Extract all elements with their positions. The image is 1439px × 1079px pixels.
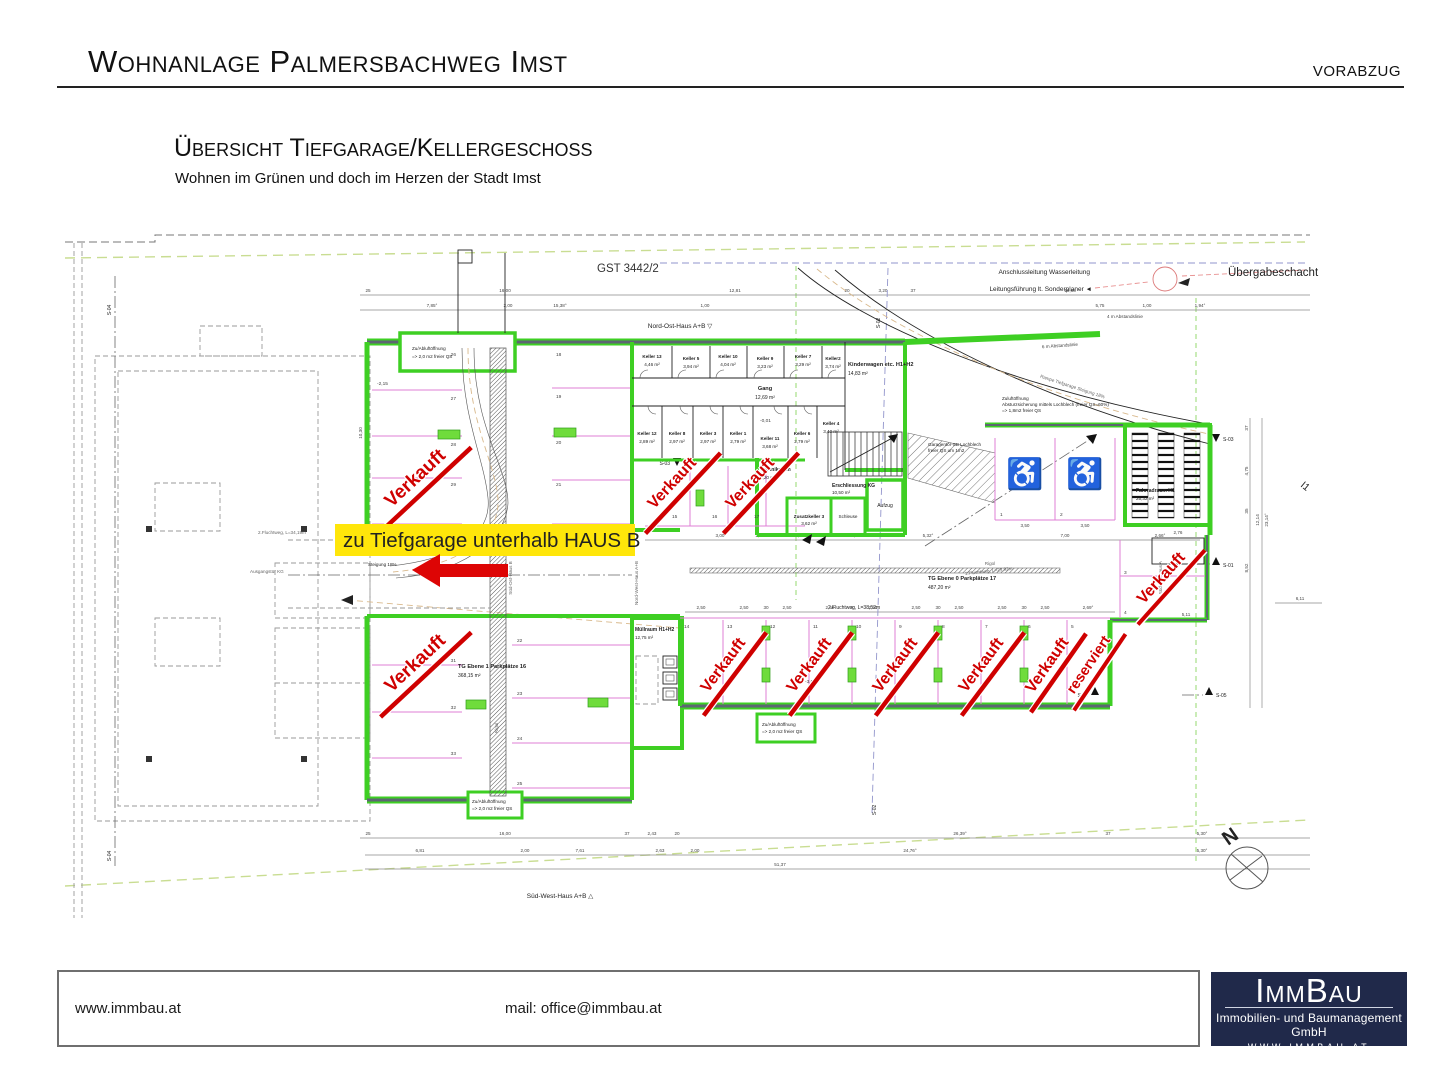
dim: 30 <box>1021 605 1027 610</box>
spot-number: 25 <box>517 781 523 787</box>
spot-number: 27 <box>451 396 457 402</box>
spot-number: 8 <box>942 624 945 630</box>
spot-number: 10 <box>856 624 862 630</box>
compass: N <box>1218 824 1268 889</box>
spot-number: 13 <box>727 624 733 630</box>
dim: 2,50 <box>912 605 921 610</box>
dim: 2,50 <box>955 605 964 610</box>
room-label: Keller 4 <box>823 421 840 426</box>
dim: 2,00 <box>521 848 530 853</box>
note-fluchtweg: 2.Fluchtweg, L=34,19m <box>258 530 306 535</box>
room-label: Keller 11 <box>761 436 780 441</box>
dim: 7,00 <box>1061 533 1070 538</box>
vent-label: => 2,0 m2 freier QS <box>472 806 512 811</box>
sold-marker: Verkauft <box>771 619 852 716</box>
dim: 2,50 <box>1041 605 1050 610</box>
dim: 37 <box>1244 425 1249 431</box>
highlight-text: zu Tiefgarage unterhalb HAUS B <box>343 529 640 552</box>
room-label: Keller 5 <box>683 356 700 361</box>
dim: 2,76 <box>1174 530 1183 535</box>
property-boundaries <box>65 235 1310 886</box>
room-area: 3,62 m² <box>801 521 817 526</box>
spot-number: 19 <box>556 394 562 400</box>
dim: 5,32° <box>923 533 934 538</box>
dim: 3,50 <box>1081 523 1090 528</box>
room-area: 487,20 m² <box>928 585 951 591</box>
floor-plan: 25 16,00 12,81 20 3,20 37 18,63 7,85° 2,… <box>60 228 1340 928</box>
room-label: Keller 9 <box>757 356 774 361</box>
vent-label: => 2,0 m2 freier QS <box>412 354 452 359</box>
room-area: 12,69 m² <box>755 395 775 401</box>
header-rule <box>57 86 1404 88</box>
note-garagentor: freier QS um 1m2 <box>928 448 965 453</box>
spot-number: 5 <box>1071 624 1074 630</box>
room-label: Keller 3 <box>700 431 717 436</box>
note-zuluft: Zuluftöffnung <box>1002 396 1029 401</box>
spot-number: 2 <box>1060 512 1063 518</box>
spot-number: 20 <box>556 440 562 446</box>
dim: 23,14° <box>1264 513 1269 526</box>
dim: 12,14 <box>1255 514 1260 526</box>
room-area: 368,15 m² <box>458 673 481 679</box>
sold-marker: Verkauft <box>857 619 938 716</box>
room-area: 2,79 m² <box>794 439 810 444</box>
room-label: Schleuse <box>839 514 858 519</box>
note-suedwest: Süd-West-Haus A+B △ <box>527 893 594 900</box>
dim: 2,43 <box>648 831 657 836</box>
spot-number: 14 <box>684 624 690 630</box>
spot-number: 6 <box>1028 624 1031 630</box>
draft-stamp: VORABZUG <box>1313 63 1401 80</box>
room-area: 3,94 m² <box>683 364 699 369</box>
spot-number: 18 <box>556 352 562 358</box>
dim: 1,00 <box>701 303 710 308</box>
spot-number: 11 <box>813 624 818 630</box>
section-s05: S-05 <box>1216 693 1227 699</box>
spot-number: 24 <box>517 736 523 742</box>
dim: 5,11 <box>1182 612 1191 617</box>
dim: 2,63 <box>656 848 665 853</box>
room-label: Keller 7 <box>795 354 812 359</box>
dim: 2,50 <box>869 605 878 610</box>
room-label: Aufzug <box>877 503 893 509</box>
dim: 3,00 <box>716 533 725 538</box>
room-area: 2,97 m² <box>669 439 685 444</box>
section-s03: S-03 <box>659 461 670 467</box>
note-zuluft: Absturzsicherung mittels Lochblech (frei… <box>1002 402 1109 407</box>
wheelchair-icon: ♿ <box>1006 456 1043 491</box>
spot-number: 12 <box>770 624 776 630</box>
spot-number: 9 <box>899 624 902 630</box>
dim: 2,50 <box>740 605 749 610</box>
dim: 30 <box>935 605 941 610</box>
dim: 37 <box>1105 831 1111 836</box>
room-label: Kinderwagen etc. H1+H2 <box>848 362 913 368</box>
room-area: 2,89 m² <box>639 439 655 444</box>
logo-line2: WWW.IMMBAU.AT <box>1211 1042 1407 1052</box>
room-area: 3,68 m² <box>762 444 778 449</box>
room-label: Keller 6 <box>794 431 811 436</box>
spot-number: 1 <box>1000 512 1003 518</box>
spot-number: 29 <box>451 482 457 488</box>
dim: 30 <box>763 605 769 610</box>
footer-mail: mail: office@immbau.at <box>505 1000 662 1017</box>
dim: 12,81 <box>729 288 741 293</box>
dim: 37 <box>624 831 630 836</box>
dim: 7,85° <box>427 303 438 308</box>
note-fluchtweg: 1.Fluchtweg, L=23,92m <box>965 566 1013 576</box>
page-title: Wohnanlage Palmersbachweg Imst <box>88 44 568 80</box>
dim: 25 <box>365 288 371 293</box>
spot-number: 31 <box>451 658 457 664</box>
room-area: 2,79 m² <box>730 439 746 444</box>
room-area: 10,50 m² <box>832 490 851 495</box>
dim: 3,20 <box>879 288 888 293</box>
room-label: Keller 12 <box>637 431 657 436</box>
room-label: Fahrradraum H1 <box>1136 488 1175 494</box>
logo-line1: Immobilien- und Baumanagement GmbH <box>1211 1011 1407 1039</box>
room-area: 3,23 m² <box>757 364 773 369</box>
room-label: Keller 8 <box>669 431 686 436</box>
room-label: TG Ebene 0 Parkplätze 17 <box>928 576 996 582</box>
parcel-label: GST 3442/2 <box>597 263 659 275</box>
note-garagentor: Garagentor-SB Lochblech <box>928 442 982 447</box>
spot-number: 23 <box>517 691 523 697</box>
note-suedost-b: Süd-Ost-Haus B <box>508 561 513 594</box>
dim: 2,50 <box>783 605 792 610</box>
room-label: TG Ebene 1 Parkplätze 16 <box>458 664 526 670</box>
room-area: 2,97 m² <box>700 439 716 444</box>
sold-marker: Verkauft <box>943 619 1024 716</box>
vent-label: => 2,0 m2 freier QS <box>762 729 802 734</box>
dim: 35 <box>1244 508 1249 514</box>
dim: 2,66° <box>1155 533 1166 538</box>
level-mark: -2,15 <box>377 381 388 387</box>
sold-marker: Verkauft <box>685 619 766 716</box>
level-symbol: I1 <box>1298 480 1312 494</box>
room-label: Keller 13 <box>642 354 662 359</box>
room-label: Gang <box>758 386 773 392</box>
dim: 6,11 <box>1296 596 1305 601</box>
note-uebergabe: Übergabeschacht <box>1228 267 1319 279</box>
room-area: 12,75 m² <box>635 635 654 640</box>
sold-marker: Verkauft <box>1122 535 1205 624</box>
dim: 1,94° <box>1195 303 1206 308</box>
room-area: 4,46 m² <box>644 362 660 367</box>
dim: 2,00 <box>691 848 700 853</box>
dim: 5,30° <box>1197 848 1208 853</box>
note-zuluft: => 1,8m2 freier QS <box>1002 408 1041 413</box>
dim: 37 <box>910 288 916 293</box>
section-s04: S-04 <box>107 851 113 862</box>
dim: 1,00 <box>1143 303 1152 308</box>
highlight-annotation: zu Tiefgarage unterhalb HAUS B <box>335 524 640 587</box>
room-area: 3,74 m² <box>825 364 841 369</box>
vent-label: Zu/Abluftöffnung <box>412 346 446 351</box>
dim: 4,75 <box>1244 466 1249 475</box>
dim: 25 <box>365 831 371 836</box>
room-label: Zusatzkeller 3 <box>794 514 825 519</box>
drawing-tagline: Wohnen im Grünen und doch im Herzen der … <box>175 170 541 187</box>
dim: 5,75 <box>1096 303 1105 308</box>
section-s04: S-04 <box>107 305 113 316</box>
dim: 10,30 <box>358 427 363 439</box>
room-label: Keller 10 <box>718 354 738 359</box>
spot-number: 15 <box>672 514 678 520</box>
spot-number: 32 <box>451 705 457 711</box>
note-rigol: Rigol <box>494 723 499 733</box>
room-area: 14,83 m² <box>848 371 868 377</box>
room-label: Keller 1 <box>730 431 747 436</box>
note-leitung: Leitungsführung lt. Sonderplaner ◄ <box>989 286 1092 293</box>
dim: 15,38° <box>553 303 566 308</box>
section-s01: S-01 <box>1223 563 1234 569</box>
spot-number: 22 <box>517 638 523 644</box>
dim: 26,39° <box>953 831 966 836</box>
note-anschluss: Anschlussleitung Wasserleitung <box>998 269 1090 276</box>
note-ausgang: Ausgangstür KG <box>250 569 284 574</box>
room-area: 3,29 m² <box>795 362 811 367</box>
footer-website: www.immbau.at <box>75 1000 181 1017</box>
spot-number: 7 <box>985 624 988 630</box>
spot-number: 26 <box>451 352 457 358</box>
dim: 7,61 <box>576 848 585 853</box>
drawing-title: Übersicht Tiefgarage/Kellergeschoss <box>174 134 593 163</box>
spot-number: 28 <box>451 442 457 448</box>
room-label: Müllraum H1+H2 <box>635 627 675 633</box>
logo-name: ImmBau <box>1211 976 1407 1006</box>
note-steigung: Steigung 18% <box>368 562 397 567</box>
room-label: Keller2 <box>825 356 841 361</box>
spot-number: 33 <box>451 751 457 757</box>
level-mark: -0,01 <box>760 418 771 424</box>
drive-aisle: Rigol TG Ebene 0 Parkplätze 17 487,20 m²… <box>634 561 1060 605</box>
note-nordwest: Nord-West-Haus A+B <box>634 561 639 605</box>
spot-number: 17 <box>754 514 760 520</box>
note-rigol: Rigol <box>985 561 995 566</box>
note-nordost: Nord-Ost-Haus A+B ▽ <box>648 323 713 330</box>
dim: 16,00 <box>499 831 511 836</box>
section-markers: S-04 S-04 S-02 S-02 S-03 S-03 S-01 S-05 … <box>107 268 1234 866</box>
spot-number: 3 <box>1124 570 1127 576</box>
dim: 6,81 <box>416 848 425 853</box>
dim: 8,52 <box>1244 563 1249 572</box>
wheelchair-icon: ♿ <box>1066 456 1103 491</box>
dim: 2,69° <box>1083 605 1094 610</box>
north-label: N <box>1218 824 1242 850</box>
room-label: Erschliessung KG <box>832 483 875 489</box>
note-abstand4: 4 m Abstandslinie <box>1107 314 1143 319</box>
muellraum: Müllraum H1+H2 12,75 m² <box>635 627 677 704</box>
vent-label: Zu/Abluftöffnung <box>762 722 796 727</box>
dim: 2,50 <box>697 605 706 610</box>
section-s03: S-03 <box>1223 437 1234 443</box>
spot-number: 4 <box>1124 610 1127 616</box>
room-area: 4,04 m² <box>720 362 736 367</box>
company-logo: ImmBau Immobilien- und Baumanagement Gmb… <box>1211 972 1407 1046</box>
dim: 2,50 <box>998 605 1007 610</box>
dim: 24,76° <box>903 848 916 853</box>
dim: 20 <box>674 831 680 836</box>
section-s02: S-02 <box>872 805 878 816</box>
dim: 2,50 <box>826 605 835 610</box>
dim: 5,30° <box>1197 831 1208 836</box>
dim: 3,50 <box>1021 523 1030 528</box>
note-abstand6: 6 m Abstandslinie <box>1042 342 1079 350</box>
dim: 30 <box>849 605 855 610</box>
vent-label: Zu/Abluftöffnung <box>472 799 506 804</box>
dim: 51,37 <box>774 862 786 867</box>
spot-number: 21 <box>556 482 562 488</box>
room-area: 25,32 m² <box>1136 496 1155 501</box>
spot-number: 16 <box>712 514 718 520</box>
